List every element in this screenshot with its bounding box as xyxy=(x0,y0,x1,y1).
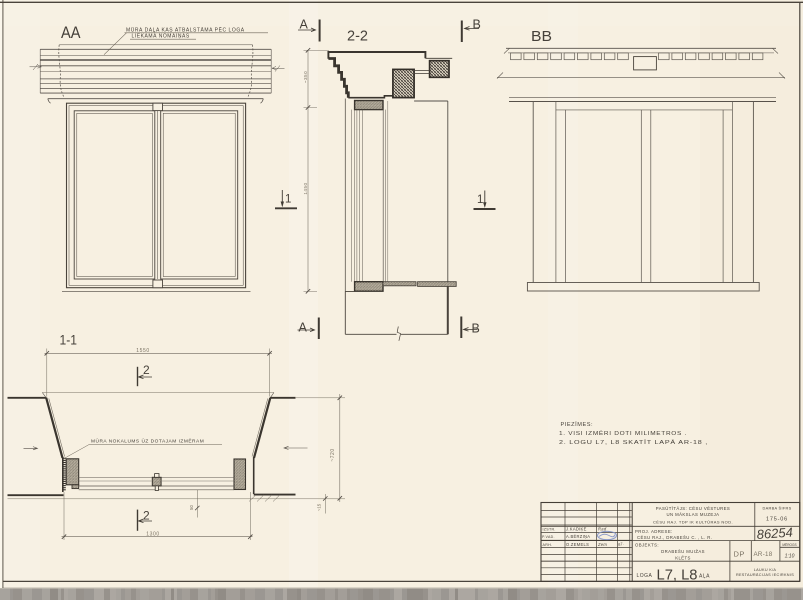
svg-text:O.ZEMELS: O.ZEMELS xyxy=(566,542,589,547)
svg-text:IZSTR.: IZSTR. xyxy=(543,528,556,532)
svg-text:2-2: 2-2 xyxy=(347,28,368,45)
svg-text:~15: ~15 xyxy=(317,503,322,511)
svg-text:LOGA: LOGA xyxy=(637,573,653,579)
svg-text:2: 2 xyxy=(143,509,150,523)
svg-text:DARBA ŠIFRS: DARBA ŠIFRS xyxy=(762,506,791,511)
svg-text:LIEKAMA NOMAIŅAS: LIEKAMA NOMAIŅAS xyxy=(132,34,190,40)
svg-text:UN MĀKSLAS MUZEJA: UN MĀKSLAS MUZEJA xyxy=(667,512,720,517)
svg-text:Rad: Rad xyxy=(598,527,607,532)
svg-text:MĒROGS: MĒROGS xyxy=(782,543,796,547)
svg-text:~350: ~350 xyxy=(303,71,308,83)
svg-text:1450: 1450 xyxy=(303,182,308,194)
svg-text:P.VAD.: P.VAD. xyxy=(542,535,555,539)
svg-text:MŪRA NOKALUMS ŪZ DOTAJAM IZMĒR: MŪRA NOKALUMS ŪZ DOTAJAM IZMĒRAM xyxy=(91,437,204,444)
svg-text:1-1: 1-1 xyxy=(60,332,78,348)
svg-text:A.BĒRZIŅA: A.BĒRZIŅA xyxy=(566,534,590,539)
svg-text:MŪRA DAĻA KAS ATBALSTĀMA PĒC L: MŪRA DAĻA KAS ATBALSTĀMA PĒC LOGA xyxy=(126,26,245,33)
svg-text:1: 1 xyxy=(285,194,291,206)
svg-text:A: A xyxy=(300,18,309,32)
svg-text:B: B xyxy=(472,322,480,336)
svg-text:L7, L8: L7, L8 xyxy=(657,567,698,584)
svg-text:PASŪTĪTĀJS: CĒSU VĒSTURES: PASŪTĪTĀJS: CĒSU VĒSTURES xyxy=(656,506,730,511)
svg-text:KLĒTS: KLĒTS xyxy=(675,555,691,560)
svg-text:86254: 86254 xyxy=(756,525,793,542)
svg-text:1: 1 xyxy=(477,194,483,206)
svg-text:1:10: 1:10 xyxy=(785,554,795,560)
svg-text:LAUKU K/A: LAUKU K/A xyxy=(754,568,777,572)
svg-text:AR-18: AR-18 xyxy=(754,551,773,558)
svg-text:1300: 1300 xyxy=(146,531,160,537)
svg-text:B: B xyxy=(473,18,481,32)
svg-text:AA: AA xyxy=(61,23,81,42)
svg-text:ARH.: ARH. xyxy=(543,543,553,547)
svg-text:DRABEŠU MUIŽAS: DRABEŠU MUIŽAS xyxy=(661,549,705,554)
svg-text:PROJ. ADRESE:: PROJ. ADRESE: xyxy=(635,529,673,534)
svg-text:2. LOGU L7, L8 SKATĪT LAPĀ AR-: 2. LOGU L7, L8 SKATĪT LAPĀ AR-18 , xyxy=(559,439,708,446)
svg-text:J.KADIĶE: J.KADIĶE xyxy=(566,527,587,532)
svg-text:CĒSU RAJ., DRABEŠU C. , L. R.: CĒSU RAJ., DRABEŠU C. , L. R. xyxy=(637,535,712,540)
svg-text:BB: BB xyxy=(531,29,552,45)
svg-text:A: A xyxy=(299,320,308,334)
svg-text:CĒSU RAJ. TDP IK KULTŪRAS NOD.: CĒSU RAJ. TDP IK KULTŪRAS NOD. xyxy=(653,519,733,524)
svg-text:1550: 1550 xyxy=(136,348,150,354)
svg-text:Zem: Zem xyxy=(597,542,607,547)
svg-text:~720: ~720 xyxy=(330,448,336,461)
svg-text:2: 2 xyxy=(143,363,150,377)
svg-text:OBJEKTS:: OBJEKTS: xyxy=(635,542,659,547)
svg-text:RESTAURĀCIJAS IECIRKNIS: RESTAURĀCIJAS IECIRKNIS xyxy=(736,573,794,577)
svg-text:1. VISI IZMĒRI DOTI MILIMETROS: 1. VISI IZMĒRI DOTI MILIMETROS . xyxy=(559,430,687,437)
svg-text:PIEZĪMES:: PIEZĪMES: xyxy=(561,421,594,428)
svg-text:AĻA: AĻA xyxy=(699,574,710,580)
svg-text:175-06: 175-06 xyxy=(766,517,788,523)
svg-text:DP: DP xyxy=(734,550,745,559)
svg-text:50: 50 xyxy=(189,505,194,510)
